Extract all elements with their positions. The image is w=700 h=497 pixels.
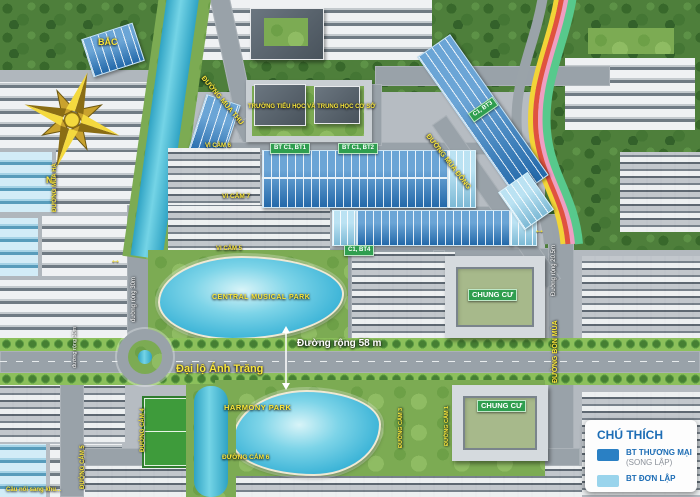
lane-dashes (0, 361, 700, 362)
road-label-cam-4: ĐƯỜNG CẢM 4 (140, 408, 146, 452)
road-width-label-30: đường rộng 30m (131, 277, 137, 322)
area-label-vi-cam-6: VI CẢM 6 (205, 143, 231, 149)
legend-label: BT THƯƠNG MẠI (626, 448, 692, 458)
legend-item-detached: BT ĐƠN LẬP (597, 474, 697, 487)
road-arrow-icon: ↔ (110, 254, 121, 266)
road-width-label-30b: đường rộng 30m (73, 327, 79, 368)
road-width-label-205: Đường rộng 20.5m (551, 245, 557, 296)
block-label-chung-cu-2: CHUNG CƯ (477, 400, 526, 412)
road-label-cam-5: ĐƯỜNG CẢM 5 (80, 445, 86, 489)
bt-strip-row-b (356, 210, 512, 246)
villas-vi-cam-7 (168, 205, 330, 253)
road-arrow-icon: ↔ (534, 224, 545, 236)
block-label-bt-c1-bt1: BT C1, BT1 (270, 143, 310, 154)
road-label-cam-6: ĐƯỜNG CẢM 6 (222, 455, 269, 462)
road-width-measure-arrow (278, 326, 294, 390)
lawn-patch (588, 28, 674, 54)
area-label-vi-cam-5: VI CẢM 5 (216, 246, 242, 252)
park-label-harmony: HARMONY PARK (224, 404, 291, 412)
roundabout-fountain (138, 350, 152, 364)
school-label: TRƯỜNG TIỂU HỌC VÀ TRUNG HỌC CƠ SỞ (248, 104, 375, 110)
housing-cluster-right (620, 152, 700, 232)
bt-light-cells (332, 210, 358, 246)
apartment-block-2 (452, 385, 548, 461)
road-label-mua-ha: ĐƯỜNG MÙA HẠ (52, 163, 58, 212)
park-label-central: CENTRAL MUSICAL PARK (212, 294, 310, 301)
courtyard (264, 18, 308, 46)
area-label-vi-cam-7: VI CẢM 7 (222, 194, 250, 201)
masterplan-map: BẮC N ↔ ↔ BT C1, BT1 BT C1, BT2 C1, BT3 … (0, 0, 700, 497)
housing-grid (582, 256, 700, 338)
legend-item-commercial: BT THƯƠNG MẠI (SONG LẬP) (597, 448, 697, 468)
block-label-c1-bt4: C1, BT4 (344, 245, 374, 256)
bt-strip-row-a (262, 150, 450, 208)
compass-north-label: BẮC (98, 38, 118, 47)
legend: CHÚ THÍCH BT THƯƠNG MẠI (SONG LẬP) BT ĐƠ… (585, 420, 697, 492)
legend-title: CHÚ THÍCH (597, 428, 697, 442)
boulevard-label: Đại lộ Ánh Trăng (176, 364, 263, 375)
block-label-bt-c1-bt2: BT C1, BT2 (338, 143, 378, 154)
legend-label: BT ĐƠN LẬP (626, 474, 676, 484)
legend-sublabel: (SONG LẬP) (626, 458, 692, 468)
strip-divider (262, 177, 448, 179)
villas-center (352, 252, 455, 338)
road-label-cam-3: ĐƯỜNG CẢM 3 (399, 408, 405, 448)
bridge-note-label: Cầu nối sang khu... (6, 487, 61, 493)
lake (194, 386, 228, 497)
housing-slabs-blue (0, 218, 38, 276)
road-label-bon-mua: ĐƯỜNG BỐN MÙA (552, 320, 559, 383)
block-label-chung-cu-1: CHUNG CƯ (468, 289, 517, 301)
legend-swatch-dark-blue (597, 449, 619, 461)
boulevard-roadway (0, 351, 700, 373)
road-width-label-58: Đường rộng 58 m (297, 339, 381, 349)
legend-swatch-light-blue (597, 475, 619, 487)
road-label-cam-1: ĐƯỜNG CẢM 1 (445, 406, 451, 446)
